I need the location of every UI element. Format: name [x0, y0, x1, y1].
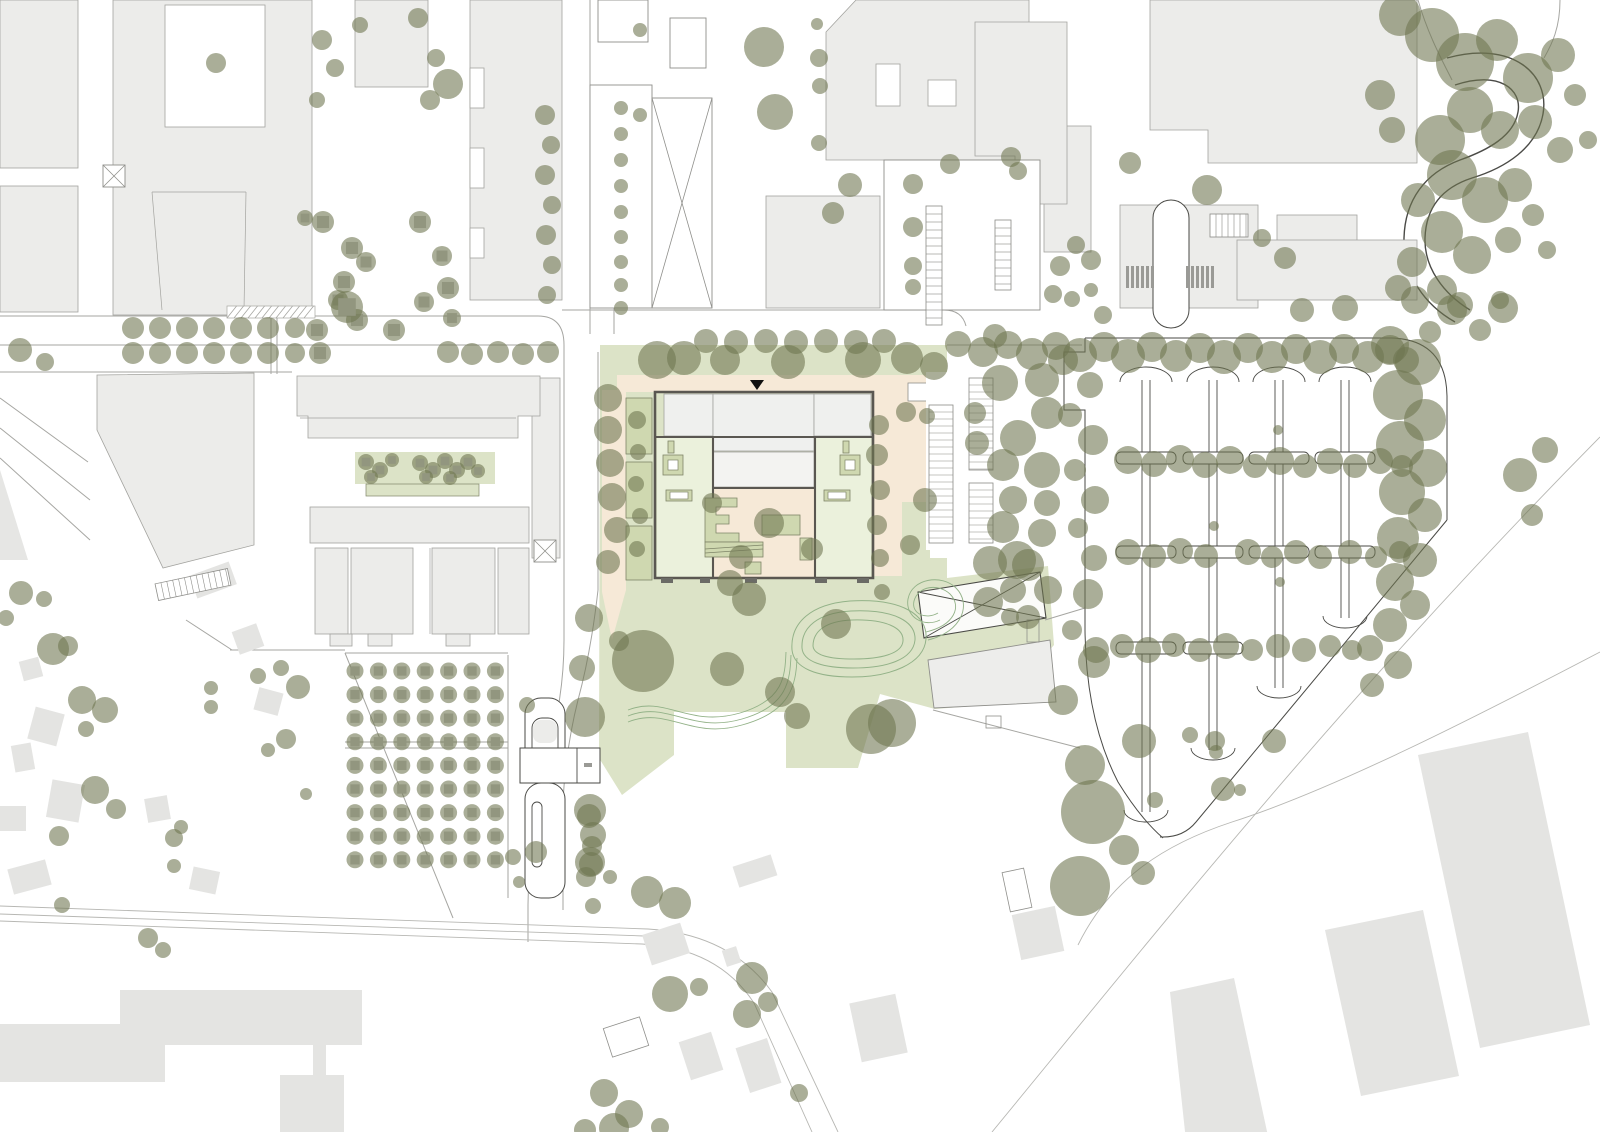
tree: [1050, 856, 1110, 916]
tree: [347, 686, 364, 703]
tree: [1061, 780, 1125, 844]
tree: [437, 277, 459, 299]
tree: [487, 686, 504, 703]
tree: [596, 550, 620, 574]
terrain-wedge: [0, 470, 28, 560]
tree: [176, 317, 198, 339]
shed: [849, 994, 907, 1062]
tree: [383, 319, 405, 341]
tree: [1235, 539, 1261, 565]
tree: [204, 700, 218, 714]
tree: [811, 135, 827, 151]
tree: [604, 517, 630, 543]
tree: [347, 781, 364, 798]
tree: [1025, 363, 1059, 397]
building-outline: [670, 18, 706, 68]
tree: [432, 246, 452, 266]
tree: [257, 342, 279, 364]
tree: [632, 508, 648, 524]
tree: [370, 781, 387, 798]
tree: [1068, 518, 1088, 538]
road-line: [186, 620, 232, 650]
tree: [965, 431, 989, 455]
tree: [1317, 448, 1343, 474]
tree: [631, 876, 663, 908]
tree: [333, 271, 355, 293]
tree: [1262, 729, 1286, 753]
zebra-stripe: [1201, 266, 1204, 288]
tree: [1437, 295, 1467, 325]
project-roof: [664, 394, 713, 436]
tree: [370, 710, 387, 727]
zebra-stripe: [1151, 266, 1154, 288]
tree: [1401, 286, 1429, 314]
tree: [940, 154, 960, 174]
tree: [569, 655, 595, 681]
tree: [464, 686, 481, 703]
wing-fixture: [668, 441, 674, 453]
tree: [765, 677, 795, 707]
tree: [784, 703, 810, 729]
tree: [1243, 454, 1267, 478]
tree: [393, 663, 410, 680]
tree: [614, 301, 628, 315]
tree: [347, 851, 364, 868]
tree: [596, 449, 624, 477]
tree: [964, 402, 986, 424]
building-flat: [1170, 978, 1274, 1132]
building: [432, 548, 495, 634]
tree: [1213, 633, 1239, 659]
shed: [1012, 906, 1065, 960]
tree: [1192, 175, 1222, 205]
tree: [1579, 131, 1597, 149]
shed: [46, 779, 85, 822]
column-foot: [700, 578, 710, 583]
tree: [1266, 634, 1290, 658]
tree: [574, 1119, 596, 1132]
tree: [1503, 458, 1537, 492]
tree: [1142, 544, 1166, 568]
tree: [987, 511, 1019, 543]
tree: [464, 757, 481, 774]
building-court: [470, 148, 484, 188]
shed: [11, 742, 35, 772]
tree: [393, 781, 410, 798]
tree: [393, 828, 410, 845]
tree: [659, 887, 691, 919]
tree: [203, 317, 225, 339]
aisle-cap: [1323, 616, 1367, 628]
project-roof: [713, 394, 814, 451]
zebra-stripe: [1206, 266, 1209, 288]
tree: [998, 541, 1036, 579]
wing-fixture-inner: [668, 460, 678, 470]
tree: [1481, 111, 1519, 149]
tree: [614, 255, 628, 269]
building: [351, 548, 413, 634]
tree: [536, 225, 556, 245]
tree: [580, 822, 606, 848]
tree: [417, 733, 434, 750]
tree: [309, 92, 325, 108]
building: [0, 186, 78, 312]
tree: [1332, 295, 1358, 321]
building-flat: [280, 1075, 344, 1132]
tree: [982, 365, 1018, 401]
tree: [614, 230, 628, 244]
building: [330, 634, 352, 646]
tree: [945, 331, 971, 357]
tree: [1081, 250, 1101, 270]
tree: [999, 486, 1027, 514]
tree: [1360, 673, 1384, 697]
tree: [1135, 637, 1161, 663]
tree: [538, 286, 556, 304]
tree: [417, 804, 434, 821]
tree: [464, 828, 481, 845]
tree: [1077, 372, 1103, 398]
tree: [733, 1000, 761, 1028]
tree: [393, 804, 410, 821]
tree: [1401, 183, 1435, 217]
tree: [1081, 545, 1107, 571]
tree: [464, 781, 481, 798]
tree: [1064, 291, 1080, 307]
tree: [866, 444, 888, 466]
tree: [1147, 792, 1163, 808]
zebra-stripe: [1186, 266, 1189, 288]
pad-outline: [986, 716, 1001, 728]
tree: [420, 90, 440, 110]
site-plan-svg: [0, 0, 1600, 1132]
site-plan-canvas: [0, 0, 1600, 1132]
tree: [370, 828, 387, 845]
tree: [300, 788, 312, 800]
tree: [1064, 459, 1086, 481]
wing-fixture-inner: [845, 460, 855, 470]
tree: [1182, 727, 1198, 743]
tree: [913, 488, 937, 512]
tree: [1216, 446, 1244, 474]
tree: [427, 49, 445, 67]
tree: [871, 549, 889, 567]
tree: [393, 686, 410, 703]
tree: [512, 343, 534, 365]
tree: [1192, 452, 1218, 478]
tree: [419, 470, 433, 484]
tree: [176, 342, 198, 364]
building: [0, 0, 78, 168]
tree: [1541, 38, 1575, 72]
tree: [149, 317, 171, 339]
tree: [206, 53, 226, 73]
tree: [801, 538, 823, 560]
tree: [1261, 546, 1283, 568]
tree: [821, 609, 851, 639]
tree: [565, 697, 605, 737]
wing-fixture-inner: [828, 492, 846, 499]
tree: [1521, 504, 1543, 526]
tree: [1532, 437, 1558, 463]
building-flat: [313, 1045, 326, 1077]
tree: [122, 342, 144, 364]
tree: [393, 710, 410, 727]
building-court: [876, 64, 900, 106]
tree: [903, 217, 923, 237]
building: [446, 634, 470, 646]
tree: [487, 781, 504, 798]
tree: [537, 341, 559, 363]
tree: [1275, 577, 1285, 587]
tree: [385, 453, 399, 467]
tree: [393, 757, 410, 774]
tree: [440, 851, 457, 868]
tree: [437, 341, 459, 363]
tree: [417, 757, 434, 774]
tree: [1400, 590, 1430, 620]
building-court: [470, 228, 484, 258]
tree: [471, 464, 485, 478]
tree: [1094, 306, 1112, 324]
tree: [609, 631, 629, 651]
tree: [370, 733, 387, 750]
tree: [370, 804, 387, 821]
tree: [487, 710, 504, 727]
road-line: [0, 428, 90, 500]
shed-outline: [1002, 868, 1032, 912]
zebra-stripe: [1211, 266, 1214, 288]
shed: [19, 657, 43, 681]
tree: [736, 962, 768, 994]
tree: [919, 408, 935, 424]
tree: [68, 686, 96, 714]
tree: [574, 794, 606, 826]
tree: [122, 317, 144, 339]
project-roof: [814, 394, 871, 436]
tree: [732, 582, 766, 616]
tree: [1188, 638, 1212, 662]
tree: [868, 699, 916, 747]
tree: [844, 330, 868, 354]
tree: [1209, 745, 1223, 759]
tree: [1357, 635, 1383, 661]
zebra-stripe: [1196, 266, 1199, 288]
tree: [784, 330, 808, 354]
tree: [440, 781, 457, 798]
tree: [1365, 80, 1395, 110]
tree: [1109, 835, 1139, 865]
tree: [347, 710, 364, 727]
tree: [629, 541, 645, 557]
tree: [174, 820, 188, 834]
tree: [757, 94, 793, 130]
building: [368, 634, 392, 646]
tree: [987, 449, 1019, 481]
tree: [250, 668, 266, 684]
tree: [542, 136, 560, 154]
tree: [1065, 745, 1105, 785]
tree: [1209, 521, 1219, 531]
tree: [370, 757, 387, 774]
tree: [364, 470, 378, 484]
road-line: [933, 710, 1080, 748]
tree: [896, 402, 916, 422]
tree: [822, 202, 844, 224]
tree: [138, 928, 158, 948]
tree: [393, 851, 410, 868]
tree: [409, 211, 431, 233]
tree: [614, 127, 628, 141]
aisle-cap: [1257, 686, 1301, 698]
tree: [36, 353, 54, 371]
tree: [1290, 298, 1314, 322]
tree: [891, 342, 923, 374]
tree: [58, 636, 78, 656]
tree: [973, 587, 1003, 617]
tree: [1274, 247, 1296, 269]
tree: [633, 23, 647, 37]
tree: [155, 942, 171, 958]
tree: [1114, 446, 1142, 474]
tree: [1081, 486, 1109, 514]
tree: [1319, 635, 1341, 657]
tree: [1453, 236, 1491, 274]
tree: [356, 252, 376, 272]
tree: [594, 384, 622, 412]
tree: [440, 804, 457, 821]
tree: [347, 733, 364, 750]
stairs: [155, 568, 231, 600]
tree: [694, 329, 718, 353]
tree: [417, 828, 434, 845]
tree: [440, 663, 457, 680]
tree: [81, 776, 109, 804]
tree: [464, 733, 481, 750]
tree: [904, 257, 922, 275]
tree: [652, 976, 688, 1012]
tree: [487, 733, 504, 750]
tree: [903, 174, 923, 194]
tree: [505, 849, 521, 865]
tree: [203, 342, 225, 364]
tree: [535, 105, 555, 125]
tree: [1469, 319, 1491, 341]
shed: [679, 1032, 724, 1081]
tree: [790, 1084, 808, 1102]
tree: [1000, 577, 1026, 603]
stairs-outline: [155, 568, 231, 600]
project-hall: [713, 452, 814, 487]
tree: [744, 27, 784, 67]
tree: [370, 686, 387, 703]
tree: [1167, 538, 1193, 564]
shed: [0, 806, 26, 831]
tree: [758, 992, 778, 1012]
tree: [585, 898, 601, 914]
tree: [1293, 454, 1317, 478]
building: [315, 548, 348, 634]
tree: [1062, 620, 1082, 640]
tree: [594, 416, 622, 444]
tree: [1476, 19, 1518, 61]
tree: [1234, 784, 1246, 796]
tree: [36, 591, 52, 607]
building: [97, 373, 254, 568]
tree: [464, 804, 481, 821]
tree: [1498, 168, 1532, 202]
building-court: [470, 68, 484, 108]
tree: [1084, 283, 1098, 297]
tree: [440, 757, 457, 774]
tree: [408, 8, 428, 28]
tree: [487, 804, 504, 821]
tree: [440, 710, 457, 727]
tree: [414, 292, 434, 312]
tree: [1547, 137, 1573, 163]
tree: [1034, 490, 1060, 516]
tree: [543, 256, 561, 274]
building: [498, 548, 529, 634]
tree: [1292, 638, 1316, 662]
tree: [1241, 639, 1263, 661]
shed-outline: [603, 1017, 648, 1057]
zebra-stripe: [1136, 266, 1139, 288]
tree: [874, 584, 890, 600]
tree: [710, 652, 744, 686]
tree: [811, 18, 823, 30]
tree: [1166, 445, 1194, 473]
tree: [1518, 105, 1552, 139]
tree: [149, 342, 171, 364]
tree: [1419, 321, 1441, 343]
tree: [417, 781, 434, 798]
tree: [729, 545, 753, 569]
tree: [1253, 229, 1271, 247]
tree: [1016, 605, 1040, 629]
tree: [312, 30, 332, 50]
building-flat: [1325, 910, 1459, 1096]
courtyard-planter: [366, 484, 479, 496]
tree: [1522, 204, 1544, 226]
tree: [1273, 425, 1283, 435]
tree: [326, 59, 344, 77]
tree: [261, 743, 275, 757]
shed: [736, 1038, 782, 1093]
tree: [1343, 454, 1367, 478]
tree: [1001, 608, 1019, 626]
tree: [257, 317, 279, 339]
tree: [920, 352, 948, 380]
tree: [614, 153, 628, 167]
tree: [535, 165, 555, 185]
tree: [352, 17, 368, 33]
tree: [900, 535, 920, 555]
tree: [1009, 162, 1027, 180]
tree: [273, 660, 289, 676]
tree: [331, 291, 363, 323]
tree: [464, 663, 481, 680]
tree: [347, 828, 364, 845]
tree: [1162, 633, 1186, 657]
tree: [417, 686, 434, 703]
tree: [1194, 544, 1218, 568]
tree: [869, 415, 889, 435]
tree: [614, 179, 628, 193]
wing-fixture: [843, 441, 849, 453]
tree: [1110, 634, 1134, 658]
tree: [867, 515, 887, 535]
